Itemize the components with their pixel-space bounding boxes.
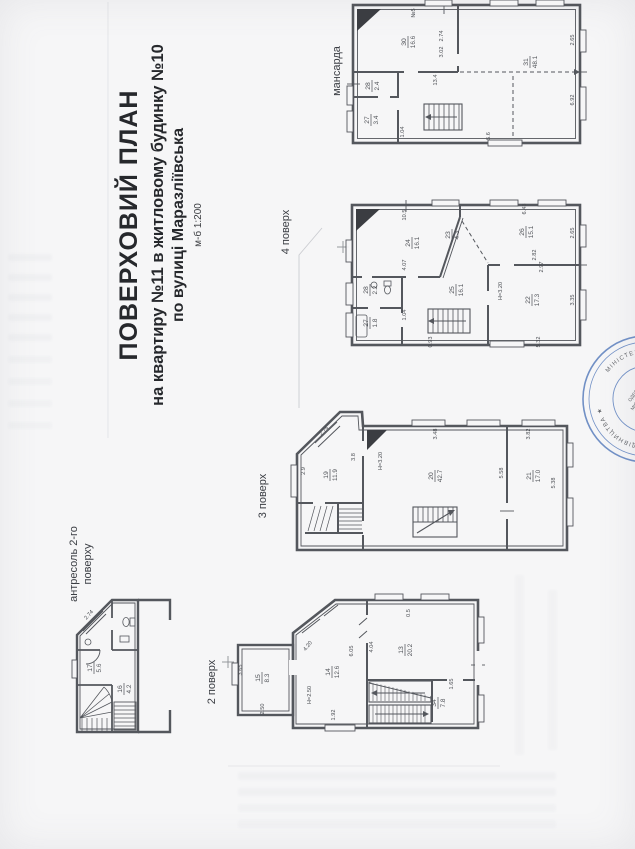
dim-label: 4.20 — [302, 640, 313, 652]
labels-layer: 1911.92042.72117.02.93.8Н=3.203.483.825.… — [301, 425, 557, 488]
stamp-mid-ring — [567, 320, 635, 479]
svg-text:20.2: 20.2 — [407, 643, 414, 656]
dim-label: 5.58 — [499, 468, 505, 479]
dim-label: 13.4 — [433, 75, 439, 86]
windows — [232, 594, 484, 731]
svg-text:27: 27 — [364, 116, 371, 124]
dim-label: 5.38 — [551, 478, 557, 489]
dim-label: 5.6 — [486, 132, 492, 140]
dim-label: 5.32 — [536, 337, 542, 348]
room-label: 271.8 — [363, 317, 379, 329]
svg-text:14: 14 — [325, 668, 332, 676]
svg-text:28: 28 — [363, 286, 370, 294]
svg-text:19: 19 — [323, 471, 330, 479]
svg-text:13: 13 — [398, 646, 405, 654]
stairs — [413, 507, 457, 537]
svg-text:3.4: 3.4 — [373, 115, 380, 124]
dim-label: 1.04 — [402, 310, 408, 321]
dim-label: 3.82 — [526, 429, 532, 440]
north-corner-mark — [356, 209, 380, 231]
floorplan-mansard: 3016.6282.4273.43148.12.743.02№513.46.92… — [340, 0, 590, 150]
floorplan-mezzanine: 175.6164.22.74 — [60, 590, 210, 750]
windows — [72, 660, 77, 678]
svg-text:8.3: 8.3 — [264, 673, 271, 682]
dim-label: Н=3.20 — [378, 452, 384, 470]
dim-label: 2.9 — [301, 467, 307, 475]
floorplan-floor4: 2416.1234.32615.12516.12217.3282.2271.81… — [340, 195, 590, 355]
room-label: 282.4 — [365, 80, 381, 92]
labels-layer: 158.31412.61320.2347.83.652.504.206.05Н=… — [238, 609, 455, 720]
svg-text:15.1: 15.1 — [528, 225, 535, 238]
svg-text:17.3: 17.3 — [534, 293, 541, 306]
room-label: 164.2 — [117, 683, 133, 695]
paper-crease — [299, 228, 322, 408]
north-corner-mark — [367, 430, 387, 450]
dim-label: 4.04 — [369, 642, 375, 653]
door-gap — [289, 660, 297, 675]
dim-label: 2.65 — [570, 35, 576, 46]
svg-text:16.1: 16.1 — [458, 283, 465, 296]
svg-text:17: 17 — [87, 664, 94, 672]
dim-label: №5 — [411, 8, 417, 17]
walls — [347, 1, 587, 143]
steps — [114, 702, 136, 730]
north-corner-mark — [357, 9, 381, 31]
mezz-stair-hatch — [308, 506, 362, 531]
svg-text:5.6: 5.6 — [96, 663, 103, 672]
dim-label: Н=2.50 — [307, 686, 313, 704]
svg-text:25: 25 — [449, 286, 456, 294]
svg-text:ОДЕСЬКЕ: ОДЕСЬКЕ — [627, 381, 635, 403]
scanned-floor-plan-page: ПОВЕРХОВИЙ ПЛАН на квартиру №11 в житлов… — [0, 0, 635, 849]
svg-text:26: 26 — [519, 228, 526, 236]
dim-label: 2.97 — [539, 262, 545, 273]
svg-text:16.6: 16.6 — [410, 35, 417, 48]
svg-text:4.3: 4.3 — [454, 230, 461, 239]
room-label: 273.4 — [364, 114, 380, 126]
floorplan-floor2: 158.31412.61320.2347.83.652.504.206.05Н=… — [225, 585, 505, 760]
walls — [238, 600, 485, 728]
official-stamp: МІНІСТЕРСТВО РЕГІОНАЛЬНОГО РОЗВИТКУ ТА Б… — [570, 326, 635, 476]
stairs — [428, 309, 470, 333]
dim-label: 3.48 — [433, 429, 439, 440]
svg-text:21: 21 — [526, 472, 533, 480]
svg-text:16.1: 16.1 — [414, 236, 421, 249]
svg-text:20: 20 — [428, 472, 435, 480]
svg-text:28: 28 — [365, 82, 372, 90]
svg-text:31: 31 — [523, 58, 530, 66]
dim-label: 10.5 — [402, 210, 408, 221]
room-label: 2117.0 — [526, 469, 542, 482]
svg-text:42.7: 42.7 — [437, 469, 444, 482]
svg-text:48.1: 48.1 — [532, 55, 539, 68]
dim-label: 2.50 — [260, 704, 266, 715]
room-label: 1320.2 — [398, 643, 414, 656]
svg-text:24: 24 — [405, 239, 412, 247]
dim-label: 3.02 — [439, 47, 445, 58]
door-gap — [475, 651, 482, 685]
dim-label: 2.65 — [570, 228, 576, 239]
room-label: 2416.1 — [405, 236, 421, 249]
dim-label: 3.65 — [238, 665, 244, 676]
stamp-center-text: ОДЕСЬКЕ МІСЬКЕ БЮРО ТЕХНІЧНОЇ ІНВЕНТАРИЗ… — [622, 374, 635, 422]
room-label: 158.3 — [255, 672, 271, 684]
winder-stairs — [80, 687, 113, 732]
svg-text:15: 15 — [255, 674, 262, 682]
dim-label: Н=3.20 — [498, 282, 504, 300]
stamp-outer-ring — [558, 311, 635, 486]
dim-label: 3.8 — [351, 453, 357, 461]
svg-text:2.4: 2.4 — [374, 81, 381, 90]
dim-label: 1.65 — [449, 679, 455, 690]
svg-text:1.8: 1.8 — [372, 318, 379, 327]
room-label: 1911.9 — [323, 469, 339, 481]
room-label: 3016.6 — [401, 35, 417, 48]
dim-label: 6.43 — [522, 204, 528, 215]
labels-layer: 3016.6282.4273.43148.12.743.02№513.46.92… — [364, 8, 576, 139]
dim-label: 1.04 — [400, 127, 406, 138]
room-label: 1412.6 — [325, 665, 341, 678]
svg-text:30: 30 — [401, 38, 408, 46]
room-label: 347.8 — [431, 697, 447, 709]
dim-label: 3.35 — [570, 295, 576, 306]
dim-label: 6.05 — [349, 646, 355, 657]
dim-label: 1.92 — [331, 710, 337, 721]
svg-text:34: 34 — [431, 699, 438, 707]
svg-text:12.6: 12.6 — [334, 665, 341, 678]
svg-text:27: 27 — [363, 319, 370, 327]
dim-label: 0.5 — [406, 609, 412, 617]
room-label: 2042.7 — [428, 469, 444, 482]
room-label: 3148.1 — [523, 55, 539, 68]
svg-text:2.2: 2.2 — [372, 285, 379, 294]
svg-text:16: 16 — [117, 685, 124, 693]
svg-text:11.9: 11.9 — [332, 469, 339, 481]
stairs — [424, 104, 462, 130]
svg-text:7.8: 7.8 — [440, 698, 447, 707]
room-label: 2615.1 — [519, 225, 535, 238]
dim-label: 2.74 — [318, 425, 330, 437]
svg-text:22: 22 — [525, 296, 532, 304]
dim-label: 4.07 — [402, 260, 408, 271]
dim-label: 2.74 — [439, 31, 445, 42]
room-label: 2516.1 — [449, 283, 465, 296]
svg-text:23: 23 — [445, 231, 452, 239]
svg-text:4.2: 4.2 — [126, 684, 133, 693]
svg-text:17.0: 17.0 — [535, 469, 542, 482]
stairs — [369, 682, 431, 723]
windows — [346, 200, 586, 347]
room-label: 2217.3 — [525, 293, 541, 306]
dim-label: 6.92 — [570, 95, 576, 106]
floorplan-floor3: 1911.92042.72117.02.93.8Н=3.203.483.825.… — [285, 403, 590, 563]
dim-label: 2.82 — [532, 250, 538, 261]
dim-label: 0.93 — [428, 337, 434, 348]
